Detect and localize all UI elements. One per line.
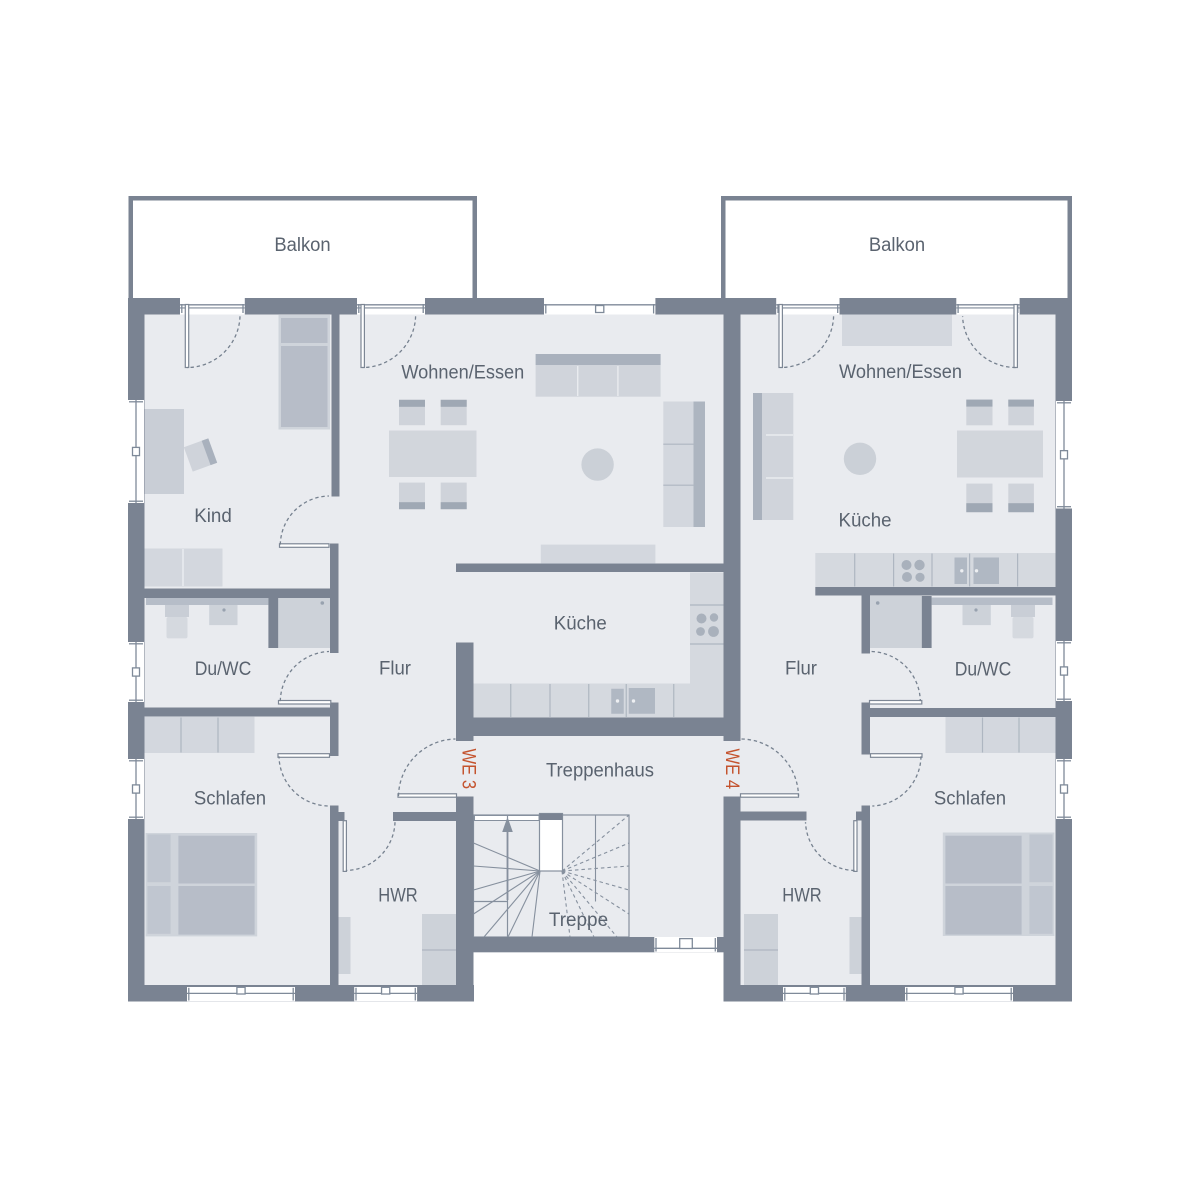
svg-text:Küche: Küche	[554, 614, 607, 635]
svg-text:Treppe: Treppe	[549, 910, 608, 931]
svg-text:Treppenhaus: Treppenhaus	[546, 761, 654, 782]
svg-text:Du/WC: Du/WC	[195, 659, 252, 680]
svg-text:WE 3: WE 3	[457, 749, 478, 790]
svg-text:Flur: Flur	[379, 659, 412, 680]
svg-text:Du/WC: Du/WC	[955, 660, 1012, 681]
svg-text:Wohnen/Essen: Wohnen/Essen	[839, 362, 962, 383]
svg-text:Kind: Kind	[194, 506, 232, 527]
svg-text:Balkon: Balkon	[869, 235, 925, 256]
svg-text:HWR: HWR	[378, 886, 417, 907]
svg-text:Küche: Küche	[839, 511, 892, 532]
svg-text:Balkon: Balkon	[274, 235, 330, 256]
svg-text:Schlafen: Schlafen	[194, 789, 266, 810]
svg-text:Schlafen: Schlafen	[934, 789, 1006, 810]
svg-text:WE 4: WE 4	[721, 749, 742, 790]
svg-text:Flur: Flur	[785, 659, 818, 680]
svg-text:HWR: HWR	[782, 886, 821, 907]
svg-text:Wohnen/Essen: Wohnen/Essen	[401, 363, 524, 384]
